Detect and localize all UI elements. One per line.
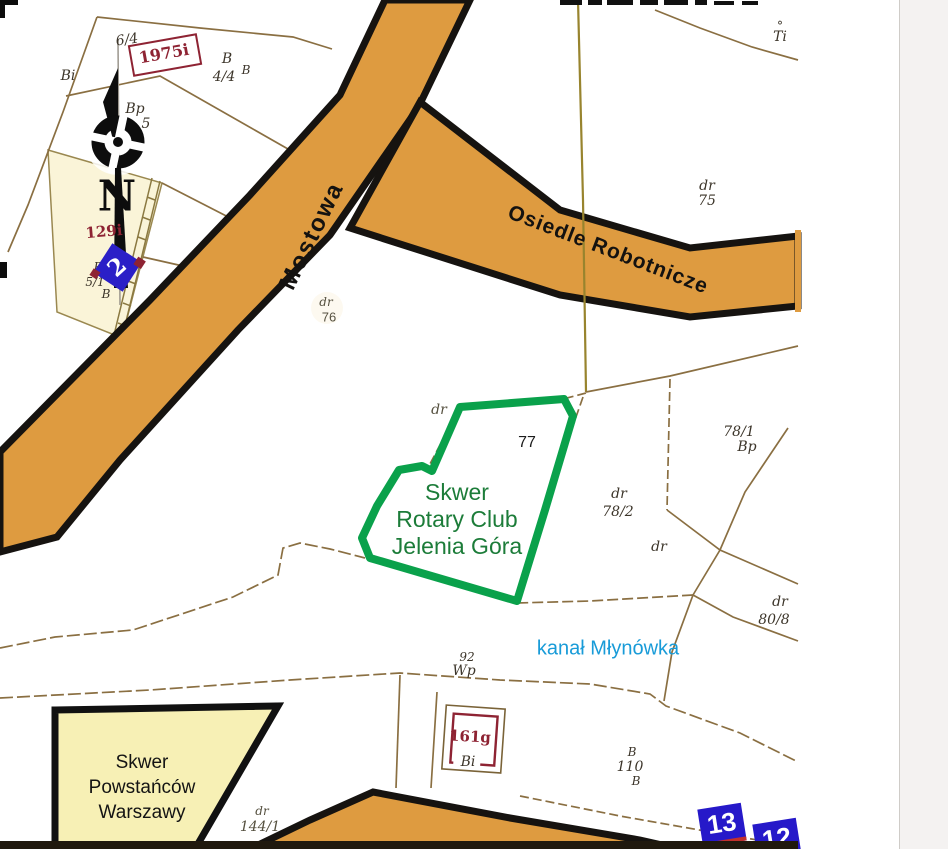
parcel-label-129i: 129i (85, 223, 123, 241)
road-label-dr-parcel77: dr (431, 403, 447, 417)
landuse-label-b5: B (628, 746, 637, 758)
road-label-dr-76: dr (319, 296, 332, 308)
parcel-label-80-8: 80/8 (758, 613, 789, 627)
marker-2-number: 2 (103, 252, 133, 283)
address-13-number: 13 (705, 805, 738, 840)
road-osiedle-robotnicze (350, 102, 798, 317)
parcel-label-75: 75 (698, 194, 716, 208)
yellow-line-1: Skwer (52, 750, 232, 775)
green-line-1: Skwer (357, 479, 557, 506)
green-line-2: Rotary Club (357, 506, 557, 533)
road-label-dr-75: dr (699, 179, 715, 193)
landuse-label-bi-building: Bi (461, 755, 476, 769)
yellow-line-2: Powstańców (52, 775, 232, 800)
green-area-label: Skwer Rotary Club Jelenia Góra (357, 479, 557, 560)
parcel-label-144-1: 144/1 (240, 820, 280, 834)
landuse-label-b2: B (242, 64, 251, 76)
parcel-label-110: 110 (617, 760, 644, 774)
bottom-map-edge-band (0, 841, 798, 849)
canal-label: kanał Młynówka (537, 638, 679, 661)
page-background-strip (899, 0, 948, 849)
landuse-label-ti: Ti (773, 30, 787, 44)
landuse-label-b1: B (222, 52, 232, 66)
cadastral-map: Mostowa Osiedle Robotnicze Skwer Rotary … (0, 0, 948, 849)
building-label-161g: 161g (449, 728, 492, 745)
road-label-dr-78-2: dr (611, 487, 627, 501)
landuse-label-b4: B (102, 288, 111, 300)
parcel-label-4-4: 4/4 (213, 70, 236, 84)
green-line-3: Jelenia Góra (357, 533, 557, 560)
landuse-label-b6: B (632, 775, 641, 787)
yellow-area-label: Skwer Powstańców Warszawy (52, 750, 232, 825)
road-label-dr-80-8: dr (772, 595, 788, 609)
parcel-label-77: 77 (518, 435, 536, 451)
landuse-label-wp: Wp (452, 664, 475, 678)
yellow-line-3: Warszawy (52, 800, 232, 825)
road-label-dr-mid: dr (651, 540, 667, 554)
road-edge-cut (795, 230, 801, 312)
parcel-label-78-2: 78/2 (602, 505, 633, 519)
parcel-label-92: 92 (459, 651, 474, 663)
compass-center-dot (113, 137, 123, 147)
parcel-label-78-1: 78/1 (723, 425, 754, 439)
cropped-text-fragment (560, 0, 758, 5)
landuse-label-bp-right: Bp (737, 440, 756, 454)
parcel-label-6-4: 6/4 (115, 32, 139, 49)
road-label-dr-144-1: dr (255, 805, 268, 817)
parcel-label-76: 76 (322, 311, 336, 324)
landuse-label-bp-topleft: Bp (125, 102, 144, 116)
compass-north-letter: N (98, 172, 136, 221)
parcel-label-5: 5 (142, 117, 151, 131)
landuse-label-bi-topleft: Bi (61, 69, 76, 83)
